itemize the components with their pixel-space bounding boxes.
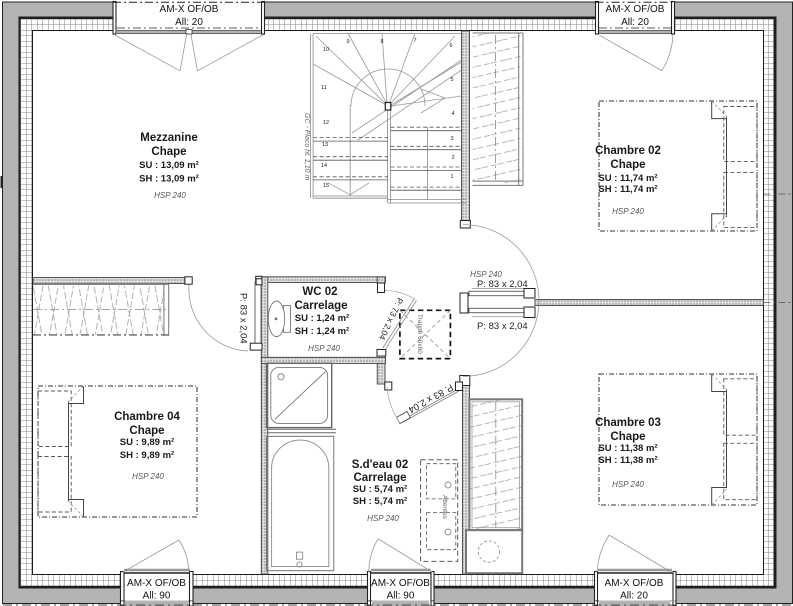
svg-text:SH : 5,74 m²: SH : 5,74 m² (353, 496, 407, 507)
svg-text:P: 83 x 2,04: P: 83 x 2,04 (477, 279, 528, 290)
svg-text:All: 20: All: 20 (621, 17, 649, 28)
svg-text:Attentes: Attentes (441, 495, 448, 520)
svg-text:AM-X OF/OB: AM-X OF/OB (127, 578, 186, 589)
svg-text:Trappe 60x60: Trappe 60x60 (416, 314, 423, 354)
svg-text:HSP 240: HSP 240 (367, 514, 399, 523)
svg-text:AM-X OF/OB: AM-X OF/OB (606, 4, 665, 15)
svg-text:6: 6 (449, 43, 452, 49)
svg-text:SH : 13,09 m²: SH : 13,09 m² (139, 174, 199, 185)
svg-text:Chambre 03: Chambre 03 (595, 417, 661, 429)
svg-text:4: 4 (451, 111, 454, 117)
svg-text:5: 5 (450, 77, 453, 83)
svg-text:All: 90: All: 90 (387, 590, 415, 601)
svg-text:Mezzanine: Mezzanine (140, 132, 198, 144)
svg-text:SH : 1,24 m²: SH : 1,24 m² (295, 326, 349, 337)
svg-text:SH : 9,89 m²: SH : 9,89 m² (120, 450, 174, 461)
svg-text:SU : 13,09 m²: SU : 13,09 m² (139, 160, 199, 171)
svg-text:HSP 240: HSP 240 (154, 191, 186, 200)
svg-text:SU : 1,24 m²: SU : 1,24 m² (295, 313, 349, 324)
svg-text:AM-X OF/OB: AM-X OF/OB (371, 578, 430, 589)
svg-text:HSP 240: HSP 240 (308, 344, 340, 353)
svg-text:Chambre 02: Chambre 02 (595, 145, 661, 157)
svg-text:SU : 11,74 m²: SU : 11,74 m² (598, 173, 657, 184)
svg-text:HSP 240: HSP 240 (132, 472, 164, 481)
svg-text:Chape: Chape (610, 159, 645, 171)
svg-text:10: 10 (323, 47, 329, 53)
svg-text:AM-X OF/OB: AM-X OF/OB (160, 4, 219, 15)
svg-text:All: 20: All: 20 (175, 17, 203, 28)
svg-text:WC 02: WC 02 (302, 286, 337, 298)
svg-text:15: 15 (323, 183, 329, 189)
svg-text:SU : 11,38 m²: SU : 11,38 m² (598, 443, 657, 454)
svg-text:All: 90: All: 90 (143, 590, 171, 601)
svg-text:3: 3 (450, 136, 453, 142)
svg-text:AM-X OF/OB: AM-X OF/OB (605, 578, 664, 589)
svg-text:Carrelage: Carrelage (294, 300, 347, 312)
svg-text:P: 83 x 2,04: P: 83 x 2,04 (238, 293, 249, 344)
svg-text:8: 8 (380, 39, 383, 45)
svg-text:Chape: Chape (610, 431, 645, 443)
svg-text:HSP 240: HSP 240 (612, 207, 644, 216)
svg-text:All: 20: All: 20 (620, 590, 648, 601)
svg-text:11: 11 (321, 85, 327, 91)
svg-text:13: 13 (322, 142, 328, 148)
svg-text:SH : 11,38 m²: SH : 11,38 m² (598, 455, 657, 466)
svg-text:7: 7 (413, 38, 416, 44)
svg-text:S.d'eau 02: S.d'eau 02 (352, 459, 408, 471)
svg-text:Chape: Chape (129, 425, 164, 437)
svg-text:2: 2 (451, 155, 454, 161)
svg-text:Chambre 04: Chambre 04 (114, 411, 180, 423)
svg-text:GC - Placo ht. 1,10 m: GC - Placo ht. 1,10 m (303, 113, 310, 180)
svg-text:SU : 5,74 m²: SU : 5,74 m² (353, 484, 407, 495)
svg-text:HSP 240: HSP 240 (612, 480, 644, 489)
svg-text:Chape: Chape (151, 146, 186, 158)
svg-text:SU : 9,89 m²: SU : 9,89 m² (120, 437, 174, 448)
svg-text:SH : 11,74 m²: SH : 11,74 m² (598, 184, 657, 195)
svg-text:Carrelage: Carrelage (353, 472, 406, 484)
svg-text:HSP 240: HSP 240 (470, 270, 502, 279)
svg-text:1: 1 (450, 174, 453, 180)
svg-text:9: 9 (346, 39, 349, 45)
svg-text:14: 14 (321, 163, 327, 169)
svg-text:12: 12 (323, 120, 329, 126)
svg-text:P: 83 x 2,04: P: 83 x 2,04 (477, 321, 528, 332)
